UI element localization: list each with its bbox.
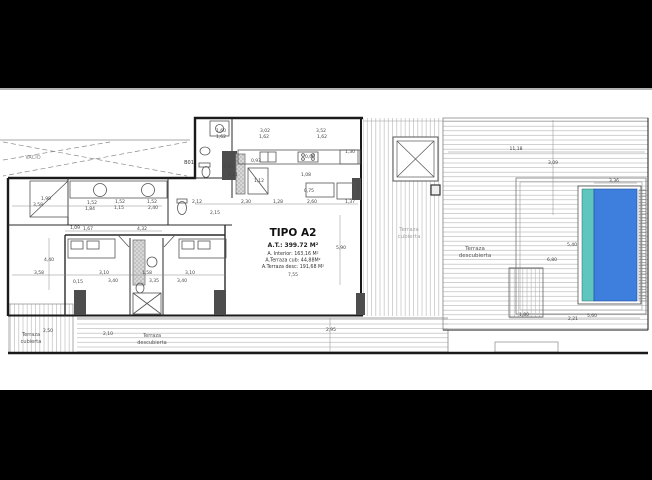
plan-label: 2,30 [241, 199, 251, 205]
plan-label: 3,10 [99, 270, 109, 276]
plan-label: 2,95 [326, 327, 336, 333]
plan-label: 1,62 [216, 134, 226, 140]
pool-bench-teal [582, 189, 594, 301]
plan-label: Terraza [464, 246, 485, 252]
terrace-service-box [431, 185, 440, 195]
plan-label: 1,99 [41, 196, 51, 202]
plan-label: 2,40 [148, 205, 158, 211]
plan-label: 3,35 [149, 278, 159, 284]
plan-label: 1,62 [259, 134, 269, 140]
plan-label: 0,75 [304, 188, 314, 194]
plan-label: 2,60 [307, 199, 317, 205]
plan-label: 1,80 [519, 312, 529, 318]
plan-label: A. Interior: 163,16 M² [267, 251, 318, 257]
plan-label: descubierta [459, 253, 491, 259]
plan-label: 1,84 [85, 206, 95, 212]
plan-label: cubierta [21, 339, 42, 345]
plan-label: 11,18 [510, 146, 523, 152]
plan-label: 6,80 [547, 257, 557, 263]
plan-label: 1,58 [142, 270, 152, 276]
plan-label: 2,15 [210, 210, 220, 216]
plan-label: 1,67 [83, 226, 93, 232]
plan-label: 3,36 [609, 178, 619, 184]
plan-label: 0,93 [251, 158, 261, 164]
plan-label: 1,08 [301, 172, 311, 178]
plan-label: 1,52 [87, 200, 97, 206]
plan-label: 1,52 [115, 199, 125, 205]
plan-label: 3,09 [548, 160, 558, 166]
plan-label: A.Terraza desc: 191,68 M² [262, 264, 324, 270]
plan-label: 1,28 [273, 199, 283, 205]
plan-label: 3,58 [33, 202, 43, 208]
floor-plan-screenshot: VACIOB01TerrazacubiertaTerrazadescubiert… [0, 0, 652, 480]
plan-label: 2,10 [103, 331, 113, 337]
plan-label: 0,60 [305, 154, 315, 160]
pool-water-blue [594, 189, 637, 301]
plan-label: 5,60 [587, 313, 597, 319]
plan-label: 3,10 [185, 270, 195, 276]
plan-label: Terraza [142, 333, 161, 339]
plan-label: 3,52 [316, 128, 326, 134]
plan-label: 5,40 [567, 242, 577, 248]
plan-label: 1,12 [254, 178, 264, 184]
plan-label: 4,32 [137, 226, 147, 232]
bottom-terrace-strip [77, 318, 448, 352]
plan-label: TIPO A2 [270, 227, 317, 239]
plan-label: 1,30 [345, 149, 355, 155]
plan-label: 7,55 [288, 272, 298, 278]
plan-label: 1,62 [317, 134, 327, 140]
plan-label: 2,12 [192, 199, 202, 205]
plan-label: 3,58 [34, 270, 44, 276]
plan-label: A.T.: 399.72 M² [268, 242, 319, 249]
plan-label: 2,21 [228, 172, 238, 178]
plan-label: B01 [184, 160, 194, 166]
plan-label: 1,15 [114, 205, 124, 211]
plan-label: 1,09 [70, 225, 80, 231]
plan-label: 1,37 [345, 199, 355, 205]
plan-label: 2,05 [223, 164, 233, 170]
plan-label: A.Terraza cub: 44,88M² [265, 258, 320, 264]
plan-label: 0,15 [73, 279, 83, 285]
plan-label: cubierta [398, 234, 421, 240]
plan-label: Terraza [398, 227, 419, 233]
pool-edge-ladder-strip [639, 190, 646, 301]
plan-label: 3,02 [260, 128, 270, 134]
plan-label: descubierta [137, 340, 167, 346]
plan-label: 3,40 [177, 278, 187, 284]
plan-label: Terraza [21, 332, 40, 338]
plan-label: 4,40 [44, 257, 54, 263]
floor-plan-canvas: VACIOB01TerrazacubiertaTerrazadescubiert… [0, 0, 652, 480]
plan-label: 5,90 [336, 245, 346, 251]
bath-duct-hatch [133, 240, 145, 285]
plan-label: 2,21 [568, 316, 578, 322]
plan-label: VACIO [25, 155, 40, 161]
plan-label: 1,60 [216, 128, 226, 134]
plan-label: 3,40 [108, 278, 118, 284]
plan-label: 2,50 [43, 328, 53, 334]
bottom-left-covered-terrace [9, 304, 73, 353]
plan-label: 1,52 [147, 199, 157, 205]
